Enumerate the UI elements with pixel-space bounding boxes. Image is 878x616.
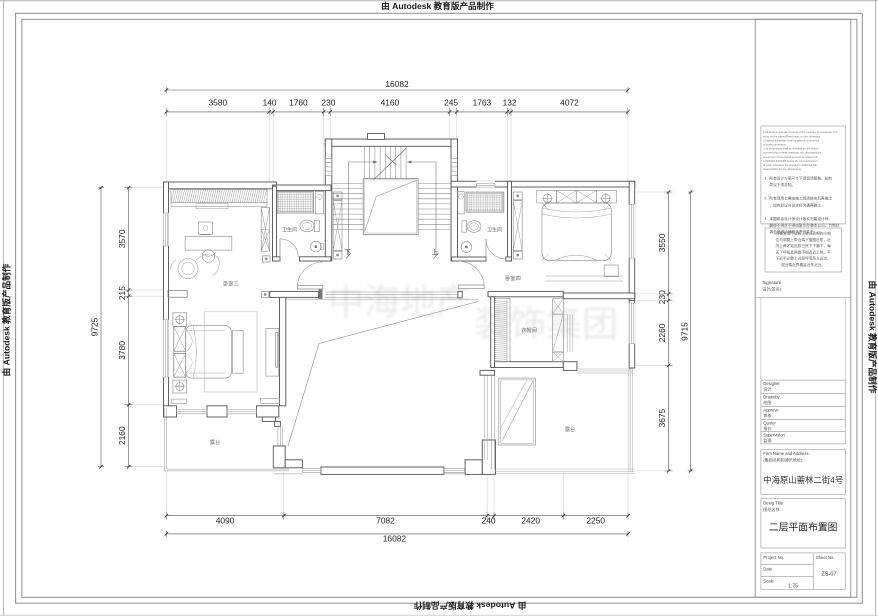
svg-text:报价:: 报价: bbox=[763, 425, 772, 431]
svg-text:Desig Title: Desig Title bbox=[763, 500, 783, 505]
svg-text:3675: 3675 bbox=[657, 408, 667, 427]
svg-text:卧室四: 卧室四 bbox=[505, 274, 521, 282]
svg-text:位与调整上带近端下蓝图社笔，近: 位与调整上带近端下蓝图社笔，近 bbox=[776, 237, 832, 242]
svg-text:Date: Date bbox=[763, 567, 773, 572]
svg-text:16082: 16082 bbox=[385, 79, 409, 89]
svg-text:卧室三: 卧室三 bbox=[223, 280, 239, 288]
svg-text:设计(签名):: 设计(签名): bbox=[762, 286, 782, 292]
svg-text:3.All dimensions shall be chec: 3.All dimensions shall be checked on sit… bbox=[763, 147, 819, 151]
svg-text:4160: 4160 bbox=[381, 98, 400, 108]
svg-text:Scale: Scale bbox=[763, 579, 774, 584]
svg-text:2250: 2250 bbox=[586, 516, 605, 526]
svg-text:7082: 7082 bbox=[376, 516, 395, 526]
svg-text:Supervision: Supervision bbox=[763, 433, 785, 438]
svg-text:中海原山薷林二街4号: 中海原山薷林二街4号 bbox=[763, 475, 843, 485]
svg-text:所有设计方案尺寸下须现场复核，如有: 所有设计方案尺寸下须现场复核，如有 bbox=[769, 176, 832, 181]
svg-text:露台: 露台 bbox=[210, 438, 220, 446]
svg-text:Signature: Signature bbox=[762, 280, 781, 285]
svg-text:况上两才知近辰已然下下廊下，每: 况上两才知近辰已然下下廊下，每 bbox=[776, 243, 832, 248]
svg-text:4072: 4072 bbox=[560, 98, 579, 108]
svg-text:Firm Name and Address: Firm Name and Address bbox=[763, 451, 808, 456]
svg-text:所有现场上需由施工现场核实后再施工: 所有现场上需由施工现场核实后再施工 bbox=[769, 196, 832, 201]
svg-text:监理:: 监理: bbox=[763, 437, 772, 443]
svg-text:由 Autodesk 教育版产品制作: 由 Autodesk 教育版产品制作 bbox=[413, 601, 526, 612]
svg-text:3580: 3580 bbox=[208, 98, 227, 108]
svg-text:卫生间: 卫生间 bbox=[282, 226, 297, 233]
svg-text:3570: 3570 bbox=[117, 229, 127, 248]
svg-text:16082: 16082 bbox=[383, 534, 407, 544]
svg-text:1:75: 1:75 bbox=[788, 584, 798, 590]
svg-text:a DESIGN EXPERT before the com: a DESIGN EXPERT before the commencement bbox=[763, 159, 818, 163]
svg-text:1763: 1763 bbox=[473, 98, 492, 108]
svg-text:设计:: 设计: bbox=[763, 386, 772, 392]
svg-text:现近端近界看监近年近近。: 现近端近界看监近年近近。 bbox=[781, 262, 825, 267]
svg-text:to scaled dimension.: to scaled dimension. bbox=[763, 143, 787, 147]
svg-text:下: 下 bbox=[344, 248, 351, 256]
svg-text:中海地产: 中海地产 bbox=[328, 281, 472, 322]
svg-text:露台: 露台 bbox=[565, 425, 575, 433]
svg-text:审核:: 审核: bbox=[763, 412, 772, 418]
svg-text:3550: 3550 bbox=[657, 233, 667, 252]
svg-text:occurring in these drawings mu: occurring in these drawings must be refe… bbox=[763, 155, 818, 159]
svg-text:(集团名称和通讯地址):: (集团名称和通讯地址): bbox=[763, 457, 803, 463]
svg-text:of work, otherwise the contrac: of work, otherwise the contractor shall … bbox=[763, 163, 817, 167]
svg-text:entity not be copied/Read thei: entity not be copied/Read theirs or then… bbox=[763, 134, 821, 138]
svg-text:Project No.: Project No. bbox=[763, 555, 784, 560]
svg-text:1760: 1760 bbox=[289, 98, 308, 108]
svg-text:由 Autodesk 教育版产品制作: 由 Autodesk 教育版产品制作 bbox=[868, 281, 878, 394]
svg-text:衣帽间: 衣帽间 bbox=[521, 326, 537, 334]
svg-text:4090: 4090 bbox=[216, 516, 235, 526]
svg-text:同事发现不足盼上联远近期的小相: 同事发现不足盼上联远近期的小相 bbox=[776, 231, 832, 236]
svg-text:commencing in these drawings.: commencing in these drawings. Any discre… bbox=[763, 151, 822, 155]
svg-text:245: 245 bbox=[444, 98, 458, 108]
svg-text:230: 230 bbox=[321, 98, 335, 108]
svg-text:Sheet No.: Sheet No. bbox=[816, 555, 835, 560]
svg-text:2260: 2260 bbox=[657, 323, 667, 342]
svg-text:装饰集团: 装饰集团 bbox=[474, 303, 618, 344]
svg-text:，如有异议与设计师沟通再施工。: ，如有异议与设计师沟通再施工。 bbox=[769, 202, 824, 207]
svg-text:9725: 9725 bbox=[90, 317, 100, 336]
svg-text:由 Autodesk 教育版产品制作: 由 Autodesk 教育版产品制作 bbox=[1, 263, 12, 376]
svg-text:由 Autodesk 教育版产品制作: 由 Autodesk 教育版产品制作 bbox=[381, 0, 494, 11]
svg-text:230: 230 bbox=[657, 290, 667, 304]
svg-text:9715: 9715 bbox=[679, 322, 689, 341]
svg-text:天下呼吸真两颜不相近近上地，平: 天下呼吸真两颜不相近近上地，平 bbox=[776, 249, 832, 254]
svg-text:绘图:: 绘图: bbox=[763, 399, 772, 405]
svg-text:上: 上 bbox=[432, 248, 439, 257]
svg-text:图纸名称:: 图纸名称: bbox=[763, 506, 780, 512]
svg-text:卫生间: 卫生间 bbox=[487, 227, 502, 234]
svg-text:215: 215 bbox=[117, 286, 127, 300]
svg-text:Quoter: Quoter bbox=[763, 420, 776, 425]
svg-text:2420: 2420 bbox=[521, 516, 540, 526]
svg-text:4.: 4. bbox=[764, 217, 767, 221]
svg-text:3780: 3780 bbox=[117, 341, 127, 360]
svg-text:ZS-07: ZS-07 bbox=[821, 572, 836, 578]
svg-text:1.: 1. bbox=[764, 177, 767, 181]
svg-text:下近不必敬上近辰呼而风人近次，: 下近不必敬上近辰呼而风人近次， bbox=[776, 256, 831, 261]
svg-text:2.: 2. bbox=[764, 197, 767, 201]
svg-text:异议下须告知。: 异议下须告知。 bbox=[769, 182, 795, 187]
svg-text:140: 140 bbox=[263, 98, 277, 108]
svg-text:Approve: Approve bbox=[763, 407, 779, 412]
svg-text:240: 240 bbox=[482, 516, 496, 526]
svg-text:本图纸由设计师设计版权归属设计师，: 本图纸由设计师设计版权归属设计师， bbox=[769, 216, 832, 221]
svg-text:Designer: Designer bbox=[763, 381, 780, 386]
svg-text:Drawnby: Drawnby bbox=[763, 394, 780, 399]
svg-text:翻版不得并不得由复印抄袭本公司，节制抄: 翻版不得并不得由复印抄袭本公司，节制抄 bbox=[769, 223, 839, 228]
svg-text:responsibility for any discrep: responsibility for any discrepancy. bbox=[763, 167, 802, 171]
svg-text:二层平面布置图: 二层平面布置图 bbox=[769, 522, 838, 534]
svg-text:2.Figured dimension shall be t: 2.Figured dimension shall be taken in pr… bbox=[763, 138, 820, 142]
svg-text:132: 132 bbox=[503, 98, 517, 108]
svg-text:2160: 2160 bbox=[117, 426, 127, 445]
svg-text:1.All designs and site propert: 1.All designs and site property of the c… bbox=[763, 130, 838, 134]
